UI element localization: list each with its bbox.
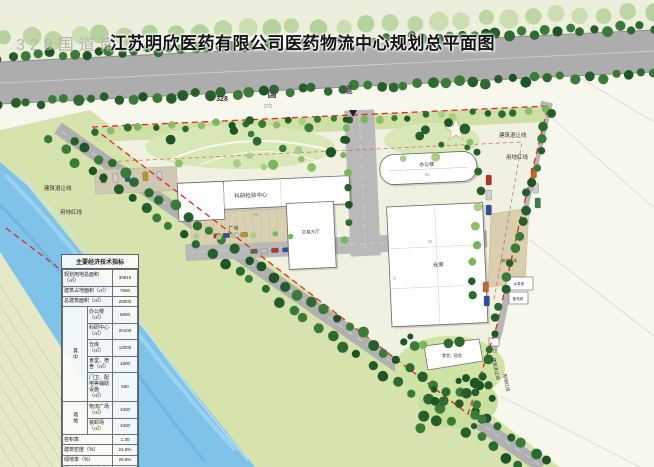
- tree: [537, 134, 546, 143]
- tree: [570, 74, 580, 84]
- tree: [479, 373, 487, 381]
- tree: [324, 87, 333, 96]
- tree: [596, 8, 612, 24]
- tree: [494, 303, 502, 311]
- tree: [389, 83, 399, 93]
- tree: [304, 123, 313, 132]
- tree: [566, 24, 575, 33]
- tree: [613, 70, 621, 78]
- tree: [152, 93, 162, 103]
- tree: [363, 81, 372, 90]
- tree: [522, 188, 530, 196]
- tree: [115, 96, 124, 105]
- tree: [21, 51, 31, 61]
- tree: [417, 372, 427, 382]
- tree: [575, 27, 584, 36]
- tree: [144, 188, 153, 197]
- table-row: 绿地率（%）28.8%: [63, 455, 138, 465]
- tree: [480, 79, 491, 90]
- building-trade-hall: [286, 201, 336, 269]
- tree: [154, 195, 163, 204]
- tree: [438, 111, 445, 118]
- tree: [184, 212, 194, 222]
- tree: [345, 219, 352, 226]
- tree: [107, 127, 115, 135]
- tree: [504, 31, 515, 42]
- tree: [346, 323, 354, 331]
- tree: [540, 25, 550, 35]
- tree: [216, 234, 222, 240]
- tree: [455, 399, 464, 408]
- tree: [298, 156, 304, 162]
- tree: [431, 152, 440, 161]
- tree: [230, 127, 238, 135]
- tree: [392, 35, 402, 45]
- tree: [468, 77, 479, 88]
- tree: [615, 21, 625, 31]
- tree: [230, 244, 240, 254]
- tree: [11, 98, 21, 108]
- tree: [431, 415, 442, 426]
- tree: [134, 123, 142, 131]
- tree: [306, 83, 315, 92]
- tree: [531, 449, 542, 460]
- tree: [538, 122, 548, 132]
- tree: [90, 25, 109, 44]
- tree: [59, 52, 67, 60]
- tree: [246, 152, 253, 159]
- tree: [95, 47, 103, 55]
- group-label-site: 场地: [72, 412, 78, 424]
- tree: [419, 341, 427, 349]
- tree: [248, 41, 256, 49]
- tree: [421, 125, 430, 134]
- tree: [114, 184, 124, 194]
- tree: [525, 107, 533, 115]
- table-row: 建筑密度（%）24.8%: [63, 445, 138, 455]
- tree: [485, 110, 492, 117]
- tree: [474, 203, 482, 211]
- tree: [405, 363, 414, 372]
- tree: [37, 101, 45, 109]
- redline-label-left: 用地红线: [60, 208, 83, 216]
- tree: [326, 147, 336, 157]
- tree: [538, 147, 545, 154]
- tree: [62, 144, 72, 154]
- tree: [378, 371, 389, 382]
- table-row: 场地 物流广场（㎡）1000: [63, 402, 138, 419]
- tree: [94, 155, 103, 164]
- indicators-table-title: 主要经济技术指标: [62, 255, 138, 269]
- tree: [519, 217, 528, 226]
- tree: [444, 118, 453, 127]
- tree: [323, 37, 333, 47]
- tree: [129, 177, 139, 187]
- tree: [627, 26, 635, 34]
- tree: [280, 282, 290, 292]
- tree: [261, 164, 267, 170]
- tree: [314, 323, 324, 333]
- tree: [382, 14, 399, 31]
- canteen-dorm-label: 食堂、宿舍: [442, 352, 462, 358]
- tree: [470, 108, 476, 114]
- tree: [340, 152, 346, 158]
- tree: [70, 158, 80, 168]
- tree: [410, 341, 420, 351]
- table-row: 建筑占地面积（㎡）7600: [63, 286, 138, 296]
- tree: [198, 122, 205, 129]
- tree: [115, 28, 134, 47]
- tree: [307, 163, 316, 172]
- tree: [331, 116, 337, 122]
- tree: [489, 28, 500, 39]
- group-label-mid: 其中: [72, 348, 78, 360]
- tree: [438, 142, 444, 148]
- tree: [517, 26, 526, 35]
- tree: [444, 339, 454, 349]
- redline-label-right: 用地红线: [506, 153, 529, 161]
- tree: [100, 92, 109, 101]
- tree: [407, 334, 413, 340]
- tree: [344, 169, 352, 177]
- tree: [214, 20, 232, 38]
- tree: [220, 259, 231, 270]
- tree: [520, 77, 531, 88]
- tree: [472, 400, 481, 409]
- tree: [428, 77, 439, 88]
- road-number-label: 328: [216, 96, 228, 103]
- tree: [298, 313, 307, 322]
- tree: [501, 453, 512, 464]
- tree: [142, 203, 152, 213]
- tree: [248, 131, 255, 138]
- tree: [473, 241, 481, 249]
- tree: [412, 78, 422, 88]
- tree: [279, 145, 287, 153]
- tree: [382, 33, 391, 42]
- tree: [232, 232, 237, 237]
- tree: [240, 44, 248, 52]
- tree: [202, 43, 212, 53]
- tree: [288, 41, 299, 52]
- tree: [164, 222, 172, 230]
- indicators-table: 主要经济技术指标 规划用地总面积（㎡）30815 建筑占地面积（㎡）7600 总…: [61, 254, 139, 467]
- tree: [637, 68, 645, 76]
- tree: [461, 388, 472, 399]
- tree: [543, 73, 552, 82]
- tree: [142, 25, 158, 41]
- tree: [318, 304, 328, 314]
- tree: [129, 194, 137, 202]
- car: [241, 232, 248, 237]
- tree: [89, 167, 97, 175]
- tree: [399, 82, 408, 91]
- tree: [262, 285, 270, 293]
- tree: [177, 90, 188, 101]
- tree: [226, 41, 235, 50]
- tree: [337, 20, 352, 35]
- tree: [212, 119, 219, 126]
- car: [486, 205, 492, 215]
- tree: [357, 15, 374, 32]
- tree: [292, 290, 303, 301]
- tree: [369, 38, 379, 48]
- tree: [286, 88, 295, 97]
- tree: [73, 95, 84, 106]
- tree: [590, 25, 598, 33]
- road-name-char1: 国: [267, 89, 276, 99]
- tree: [205, 227, 213, 235]
- tree: [392, 356, 400, 364]
- tree: [484, 381, 492, 389]
- tree: [154, 48, 164, 58]
- tree: [407, 16, 423, 32]
- tree: [205, 90, 216, 101]
- tree: [343, 125, 350, 132]
- tree: [44, 135, 52, 143]
- tree: [170, 200, 181, 211]
- car: [271, 248, 278, 253]
- tree: [439, 396, 449, 406]
- power-house-label: 配电房: [513, 296, 524, 301]
- tree: [423, 111, 430, 118]
- tree: [310, 20, 328, 38]
- tree: [345, 201, 353, 209]
- tree: [552, 26, 562, 36]
- tree: [429, 12, 449, 32]
- tree: [269, 273, 280, 284]
- tree: [337, 342, 348, 353]
- tree: [87, 95, 95, 103]
- tree: [598, 74, 608, 84]
- tree: [328, 331, 339, 342]
- tree: [288, 234, 294, 240]
- tree: [493, 422, 501, 430]
- tree: [477, 415, 486, 424]
- tree: [393, 377, 403, 387]
- tree: [377, 82, 387, 92]
- tree: [168, 25, 185, 42]
- tree: [468, 258, 476, 266]
- tree: [21, 98, 29, 106]
- tree: [376, 116, 384, 124]
- road-name-char2: 道: [343, 84, 352, 95]
- tree: [624, 70, 634, 80]
- tree: [120, 167, 131, 178]
- tree: [470, 31, 479, 40]
- tree: [191, 43, 202, 54]
- tree: [191, 88, 200, 97]
- tree: [343, 117, 349, 123]
- tree: [358, 327, 369, 338]
- tree: [236, 267, 245, 276]
- tree: [404, 116, 410, 122]
- setback-line-label-left: 建筑退让线: [44, 184, 72, 192]
- car: [113, 173, 118, 182]
- tree: [509, 74, 517, 82]
- tree: [515, 232, 524, 241]
- tree: [143, 43, 152, 52]
- tree: [108, 159, 117, 168]
- tree: [431, 397, 440, 406]
- tree: [345, 37, 353, 45]
- tree: [502, 272, 512, 282]
- tree: [284, 18, 299, 33]
- tree: [368, 340, 379, 351]
- office-label: 办公楼: [419, 161, 434, 169]
- tree: [391, 115, 397, 121]
- tree: [344, 184, 351, 191]
- tree: [70, 50, 80, 60]
- tree: [71, 137, 79, 145]
- tree: [306, 297, 317, 308]
- tree: [9, 52, 18, 61]
- tree: [59, 94, 68, 103]
- tree: [99, 174, 107, 182]
- tree: [166, 135, 176, 145]
- tree: [48, 95, 57, 104]
- tree: [246, 116, 254, 124]
- plaza-label: 广场: [228, 225, 238, 232]
- tree: [295, 146, 303, 154]
- tree: [265, 38, 275, 48]
- tree: [507, 434, 515, 442]
- tree: [506, 260, 513, 267]
- tree: [129, 46, 138, 55]
- tree: [477, 187, 486, 196]
- tree: [168, 121, 176, 129]
- tree: [474, 149, 481, 156]
- tree: [175, 159, 183, 167]
- tree: [471, 222, 480, 231]
- tree: [502, 285, 511, 294]
- tree: [454, 75, 465, 86]
- tree: [479, 10, 494, 25]
- tree: [274, 297, 285, 308]
- tree: [499, 9, 518, 28]
- tree: [176, 44, 186, 54]
- tree: [239, 18, 258, 37]
- road-dim-label: 270: [264, 104, 273, 110]
- tree: [72, 26, 90, 44]
- tree: [542, 456, 551, 465]
- tree: [152, 213, 161, 222]
- tree: [548, 5, 565, 22]
- tree: [44, 31, 63, 50]
- tree: [454, 337, 464, 347]
- car: [483, 282, 489, 292]
- tree: [245, 257, 254, 266]
- tree: [458, 31, 467, 40]
- tree: [489, 441, 499, 451]
- car: [535, 198, 541, 208]
- tree: [233, 90, 243, 100]
- tree: [243, 87, 254, 98]
- tree: [299, 118, 307, 126]
- tree: [274, 41, 282, 49]
- tree: [268, 160, 278, 170]
- tree: [602, 26, 613, 37]
- tree: [447, 417, 456, 426]
- tree: [118, 50, 126, 58]
- tree: [166, 93, 177, 104]
- tree: [452, 12, 469, 29]
- tree: [462, 374, 470, 382]
- table-row: 规划用地总面积（㎡）30815: [63, 270, 138, 287]
- car: [486, 190, 492, 200]
- tree: [337, 35, 346, 44]
- tree: [333, 315, 341, 323]
- site-plan-page: 科研检验中心 93 交易大厅 办公楼 60 仓库 55 72 广场 食堂、宿舍 …: [0, 0, 654, 467]
- tree: [407, 390, 415, 398]
- tree: [619, 3, 636, 20]
- tree: [91, 129, 98, 136]
- car: [143, 172, 148, 181]
- tree: [472, 389, 480, 397]
- tree: [273, 231, 278, 236]
- tree: [470, 378, 480, 388]
- tree: [489, 395, 496, 402]
- tree: [418, 411, 429, 422]
- tree: [23, 27, 42, 46]
- tree: [571, 8, 587, 24]
- tree: [556, 71, 564, 79]
- tree: [400, 155, 407, 162]
- tree: [124, 124, 132, 132]
- tree: [193, 233, 199, 239]
- tree: [191, 24, 210, 43]
- tree: [34, 49, 43, 58]
- tree: [467, 139, 474, 146]
- tree: [433, 34, 444, 45]
- tree: [456, 378, 462, 384]
- tree: [233, 159, 241, 167]
- tree: [474, 168, 482, 176]
- tree: [521, 206, 531, 216]
- tree: [314, 116, 321, 123]
- tree: [461, 427, 471, 437]
- tree: [165, 43, 174, 52]
- tree: [129, 95, 139, 105]
- tree: [468, 277, 476, 285]
- tree: [153, 125, 159, 131]
- tree: [340, 136, 348, 144]
- tree: [534, 164, 541, 171]
- tree: [250, 232, 256, 238]
- tree: [441, 78, 451, 88]
- tree: [193, 221, 202, 230]
- table-row: 总建筑面积（㎡）29000: [63, 296, 138, 306]
- tree: [494, 75, 502, 83]
- tree: [400, 338, 407, 345]
- tree: [516, 438, 526, 448]
- tree: [138, 92, 147, 101]
- tree: [525, 8, 541, 24]
- tree: [83, 51, 92, 60]
- tree: [273, 121, 280, 128]
- tree: [445, 32, 454, 41]
- tree: [491, 313, 499, 321]
- tree: [79, 143, 89, 153]
- car: [260, 248, 267, 253]
- tree: [585, 71, 595, 81]
- tree: [431, 386, 438, 393]
- tree: [469, 291, 477, 299]
- tree: [478, 432, 487, 441]
- tree: [415, 423, 425, 433]
- tree: [530, 31, 539, 40]
- tree: [180, 230, 188, 238]
